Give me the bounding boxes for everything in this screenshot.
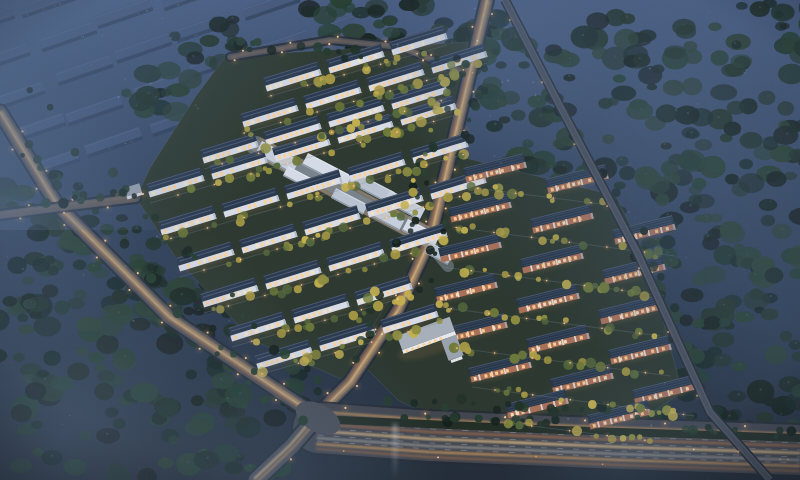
scene-canvas <box>0 0 800 480</box>
vignette <box>0 0 800 480</box>
aerial-night-rendering <box>0 0 800 480</box>
